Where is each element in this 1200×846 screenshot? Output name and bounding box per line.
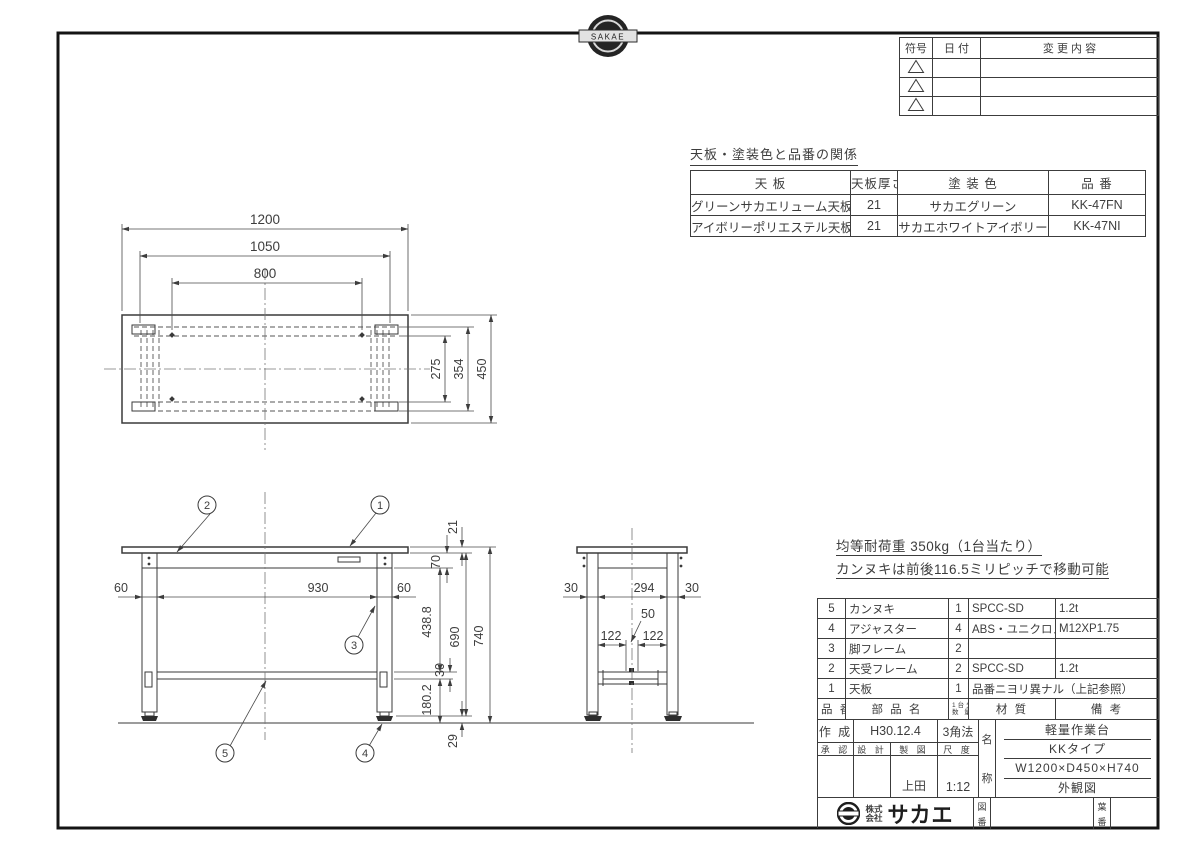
- company-stamp-icon: SAKAE: [579, 15, 637, 57]
- callout-3: 3: [345, 606, 375, 654]
- designed-value: [854, 756, 891, 798]
- parts-col-remarks: 備 考: [1056, 699, 1159, 720]
- revision-col-date: 日 付: [933, 38, 981, 59]
- dim-front-60-right: 60: [397, 581, 411, 595]
- revision-row: [900, 97, 1159, 116]
- drafted-value: 上田: [891, 756, 938, 798]
- parts-row: 1 天板 1 品番ニヨリ異ナル（上記参照）: [818, 679, 1159, 699]
- parts-col-material: 材 質: [969, 699, 1056, 720]
- title-block: 作 成 H30.12.4 3角法 承 認 設 計 製 図 尺 度 上田 1:12…: [817, 719, 1158, 828]
- finish-col-color: 塗 装 色: [898, 171, 1049, 195]
- finish-row: グリーンサカエリューム天板 21 サカエグリーン KK-47FN: [691, 195, 1146, 216]
- parts-col-qty: 1台分 数 量: [949, 699, 969, 720]
- front-view: 60 930 60 21 70 438.8 690 740 30 180.2: [114, 492, 754, 762]
- drawing-kind: 外観図: [1004, 779, 1151, 798]
- callout-5: 5: [216, 681, 266, 762]
- dim-side-30-left: 30: [564, 581, 578, 595]
- svg-text:2: 2: [204, 500, 210, 512]
- finish-col-thickness: 天板厚さ: [851, 171, 898, 195]
- parts-row: 4 アジャスター 4 ABS・ユニクロメッキ M12XP1.75: [818, 619, 1159, 639]
- product-name-area: 軽量作業台 KKタイプ W1200×D450×H740 外観図: [996, 720, 1159, 798]
- dim-side-122-left: 122: [601, 629, 622, 643]
- product-series: KKタイプ: [1004, 740, 1151, 760]
- finish-table: 天 板 天板厚さ 塗 装 色 品 番 グリーンサカエリューム天板 21 サカエグ…: [690, 170, 1146, 237]
- dim-side-30-right: 30: [685, 581, 699, 595]
- company-name: サカエ: [888, 798, 954, 830]
- approved-value: [818, 756, 854, 798]
- drawing-no-label: 図 番: [974, 798, 991, 829]
- drawing-no-value: [991, 798, 1094, 829]
- parts-row: 2 天受フレーム 2 SPCC-SD 1.2t: [818, 659, 1159, 679]
- company-prefix: 株式 会社: [865, 805, 882, 823]
- finish-table-title: 天板・塗装色と品番の関係: [690, 144, 858, 166]
- product-size: W1200×D450×H740: [1004, 759, 1151, 779]
- svg-text:3: 3: [351, 640, 357, 652]
- dim-top-275: 275: [429, 359, 443, 380]
- callout-2: 2: [177, 496, 216, 552]
- parts-table: 5 カンヌキ 1 SPCC-SD 1.2t 4 アジャスター 4 ABS・ユニク…: [817, 598, 1159, 720]
- finish-row: アイボリーポリエステル天板 21 サカエホワイトアイボリー KK-47NI: [691, 216, 1146, 237]
- revision-triangle-icon: [907, 59, 925, 74]
- svg-text:4: 4: [362, 748, 368, 760]
- dim-top-1050: 1050: [250, 239, 280, 254]
- dim-front-740: 740: [472, 626, 486, 647]
- scale-value: 1:12: [938, 756, 979, 798]
- dim-top-1200: 1200: [250, 212, 280, 227]
- dim-front-30: 30: [433, 663, 447, 677]
- parts-row: 3 脚フレーム 2: [818, 639, 1159, 659]
- dim-front-21: 21: [446, 520, 460, 534]
- parts-col-no: 品 番: [818, 699, 846, 720]
- dim-front-438-8: 438.8: [420, 606, 434, 637]
- scale-label: 尺 度: [938, 743, 979, 756]
- note-load-capacity: 均等耐荷重 350kg（1台当たり）: [836, 535, 1042, 556]
- dim-front-70: 70: [429, 555, 443, 569]
- parts-header-row: 品 番 部 品 名 1台分 数 量 材 質 備 考: [818, 699, 1159, 720]
- svg-text:5: 5: [222, 748, 228, 760]
- top-view: 1200 1050 800 450 354 275: [104, 212, 497, 450]
- stamp-text: SAKAE: [591, 33, 625, 42]
- revision-row: [900, 78, 1159, 97]
- sheet-no-label: 葉 番: [1094, 798, 1111, 829]
- revision-col-change: 変 更 内 容: [981, 38, 1159, 59]
- bolt-marks: [169, 332, 365, 402]
- finish-col-top: 天 板: [691, 171, 851, 195]
- dim-top-800: 800: [254, 266, 277, 281]
- revision-table: 符号 日 付 変 更 内 容: [899, 37, 1159, 116]
- name-label: 名 称: [979, 720, 996, 798]
- created-date: H30.12.4: [854, 720, 938, 743]
- dim-front-29: 29: [446, 734, 460, 748]
- parts-col-name: 部 品 名: [846, 699, 949, 720]
- note-kannuki-pitch: カンヌキは前後116.5ミリピッチで移動可能: [836, 558, 1109, 579]
- dim-top-450: 450: [475, 359, 489, 380]
- revision-triangle-icon: [907, 97, 925, 112]
- sheet-no-value: [1111, 798, 1159, 829]
- dim-top-354: 354: [452, 359, 466, 380]
- callout-4: 4: [356, 724, 382, 762]
- revision-col-code: 符号: [900, 38, 933, 59]
- dim-front-180-2: 180.2: [420, 684, 434, 715]
- drawing-sheet: SAKAE 12: [0, 0, 1200, 846]
- side-view: 30 294 30 50 122 122: [563, 528, 701, 753]
- callout-1: 1: [350, 496, 389, 546]
- dim-side-122-right: 122: [643, 629, 664, 643]
- created-label: 作 成: [818, 720, 854, 743]
- company-emblem-icon: [837, 802, 860, 825]
- dim-side-50: 50: [641, 607, 655, 621]
- projection-method: 3角法: [938, 720, 979, 743]
- dim-front-930: 930: [308, 581, 329, 595]
- finish-col-part-no: 品 番: [1049, 171, 1146, 195]
- revision-row: [900, 59, 1159, 78]
- revision-triangle-icon: [907, 78, 925, 93]
- product-type: 軽量作業台: [1004, 720, 1151, 740]
- drafted-label: 製 図: [891, 743, 938, 756]
- company-logo: 株式 会社 サカエ: [818, 798, 974, 829]
- dim-front-690: 690: [448, 627, 462, 648]
- designed-label: 設 計: [854, 743, 891, 756]
- dim-front-60-left: 60: [114, 581, 128, 595]
- parts-row: 5 カンヌキ 1 SPCC-SD 1.2t: [818, 599, 1159, 619]
- approved-label: 承 認: [818, 743, 854, 756]
- dim-side-294: 294: [634, 581, 655, 595]
- svg-text:1: 1: [377, 500, 383, 512]
